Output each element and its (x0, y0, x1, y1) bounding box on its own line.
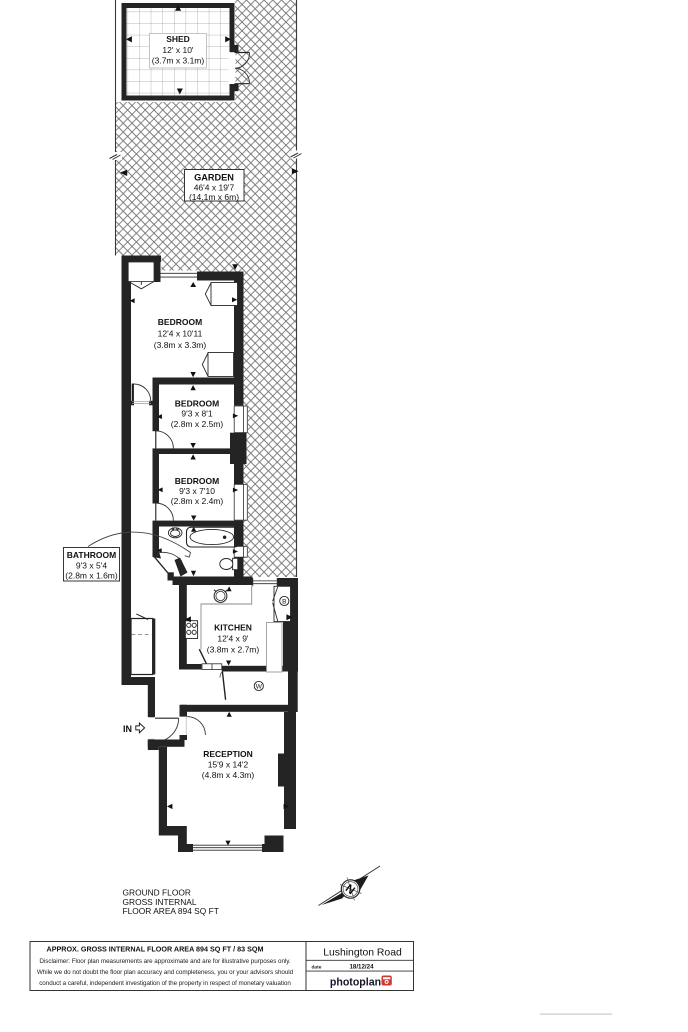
svg-text:conduct a careful, independent: conduct a careful, independent investiga… (39, 980, 291, 987)
svg-text:(3.7m x 3.1m): (3.7m x 3.1m) (152, 56, 205, 66)
svg-text:(3.8m x 2.7m): (3.8m x 2.7m) (207, 645, 260, 655)
svg-text:B: B (282, 599, 286, 606)
svg-text:SHED: SHED (166, 34, 190, 44)
svg-text:date: date (312, 964, 322, 970)
svg-text:BEDROOM: BEDROOM (158, 317, 202, 327)
svg-text:46'4 x 19'7: 46'4 x 19'7 (194, 183, 235, 193)
svg-text:12' x 10': 12' x 10' (162, 45, 194, 55)
svg-text:12'4 x 9': 12'4 x 9' (217, 634, 249, 644)
svg-text:BEDROOM: BEDROOM (175, 399, 219, 409)
svg-text:FLOOR AREA 894 SQ FT: FLOOR AREA 894 SQ FT (123, 906, 219, 916)
svg-text:Lushington Road: Lushington Road (323, 948, 402, 959)
svg-text:BEDROOM: BEDROOM (175, 476, 219, 486)
svg-text:While we do not doubt the floo: While we do not doubt the floor plan acc… (37, 969, 294, 976)
svg-text:9'3 x 8'1: 9'3 x 8'1 (181, 409, 212, 419)
svg-text:photoplan: photoplan (330, 976, 381, 988)
svg-text:APPROX. GROSS INTERNAL FLOOR A: APPROX. GROSS INTERNAL FLOOR AREA 894 SQ… (47, 945, 264, 954)
svg-text:(4.8m x 4.3m): (4.8m x 4.3m) (202, 770, 255, 780)
svg-text:(14.1m x 6m): (14.1m x 6m) (189, 192, 239, 202)
svg-text:W: W (256, 684, 263, 691)
svg-text:(2.8m x 1.6m): (2.8m x 1.6m) (65, 571, 118, 581)
svg-text:(3.8m x 3.3m): (3.8m x 3.3m) (154, 340, 207, 350)
svg-text:(2.8m x 2.4m): (2.8m x 2.4m) (171, 496, 224, 506)
svg-text:Disclaimer: Floor plan measure: Disclaimer: Floor plan measurements are … (39, 958, 290, 965)
svg-text:BATHROOM: BATHROOM (67, 550, 116, 560)
svg-text:9'3 x 5'4: 9'3 x 5'4 (76, 561, 107, 571)
svg-text:(2.8m x 2.5m): (2.8m x 2.5m) (171, 419, 224, 429)
svg-text:15'9 x 14'2: 15'9 x 14'2 (208, 760, 249, 770)
svg-text:KITCHEN: KITCHEN (214, 623, 252, 633)
svg-text:GARDEN: GARDEN (194, 173, 234, 183)
svg-text:18/12/24: 18/12/24 (349, 964, 374, 971)
svg-text:IN: IN (123, 724, 132, 734)
svg-text:RECEPTION: RECEPTION (203, 749, 253, 759)
svg-text:12'4 x 10'11: 12'4 x 10'11 (158, 329, 203, 339)
svg-text:9'3 x 7'10: 9'3 x 7'10 (179, 486, 215, 496)
